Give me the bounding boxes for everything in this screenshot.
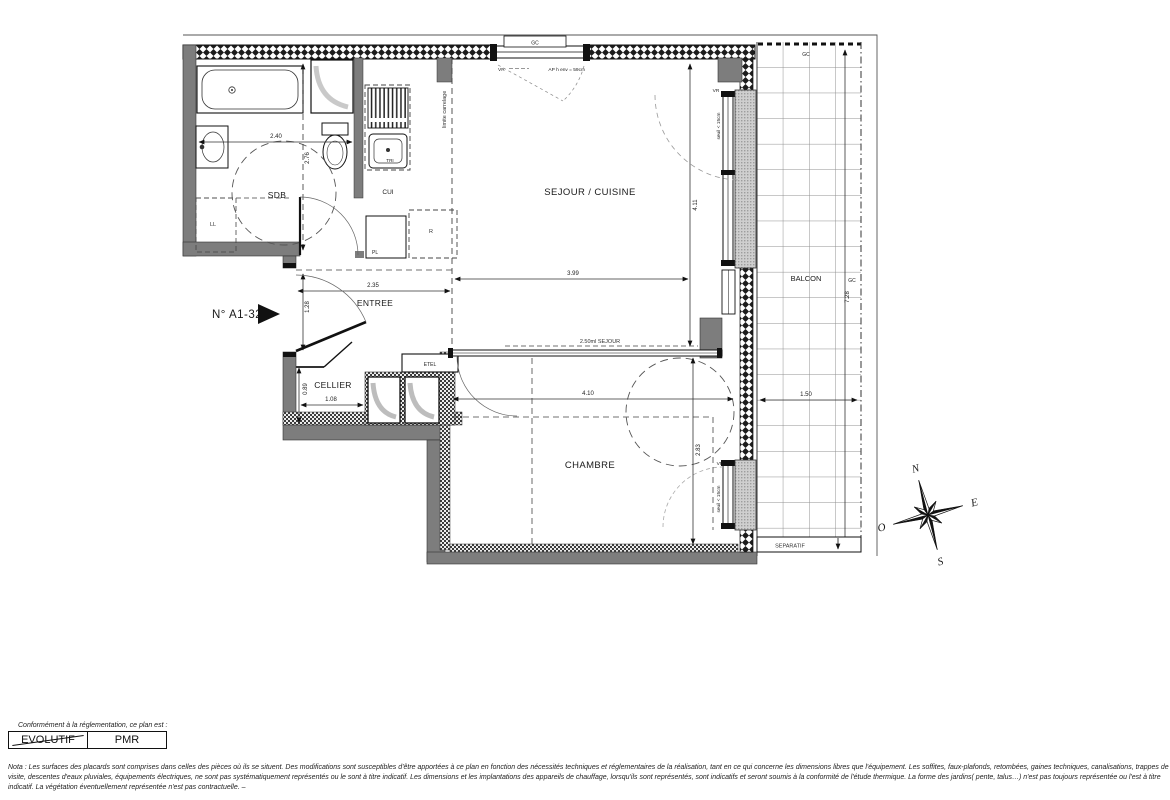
sdb-depth-dim: 2.76 [305,152,311,164]
sejour-bay-window: VR seuil < 15cm [655,88,756,268]
kitchen-window: GC VR AP h env = 59cm [490,36,590,101]
legend-intro: Conformément à la réglementation, ce pla… [18,722,167,729]
vr-housing-chambre [735,460,756,530]
ll-label: LL [210,222,216,228]
separatif-label: SEPARATIF [775,544,805,550]
compass-west-label: O [876,521,887,535]
nota-text: Nota : Les surfaces des placards sont co… [8,763,1166,793]
washbasin [196,126,228,168]
sdb-width-dim: 2.40 [270,134,282,140]
bathroom: LL SDB 2.40 2.76 [196,58,364,258]
chambre-bay-window: VR seuil < 15cm [663,460,756,530]
compass-north-label: N [910,462,922,476]
floor-plan-drawing: GC GC BALCON 7.28 1.50 SEPARATIF [0,0,1170,715]
entry-arrow-icon [258,304,280,324]
sejour-label: SEJOUR / CUISINE [544,187,635,198]
compass-east-label: E [969,496,980,510]
gc-label-right: GC [848,278,856,284]
wall-sdb-kitchen [354,58,363,198]
vr-label-sejour: VR [713,88,720,94]
sdb-label: SDB [268,190,286,200]
r-label: R [429,229,433,235]
gc-label-top: GC [802,52,810,58]
entree-depth-dim: 1.28 [305,301,311,313]
chambre-width-dim: 4.10 [582,391,594,397]
cellier-label: CELLIER [314,380,352,390]
entree-label: ENTREE [357,298,393,308]
cellar: CELLIER 1.08 0.89 [296,342,363,423]
cellier-depth-dim: 0.89 [303,383,309,395]
vr-label-top: VR [498,67,505,73]
sejour-lineal-dim: 2.50ml SEJOUR [580,339,620,345]
bathtub [197,66,303,113]
compass-south-label: S [936,555,945,568]
tri-label: TRI [386,158,393,163]
sejour-width-dim: 3.99 [567,271,579,277]
duct-box-sdb [311,60,353,113]
exterior-walls [183,45,757,564]
plan-legend: Conformément à la réglementation, ce pla… [8,722,167,749]
cui-label: CUI [382,189,393,196]
seuil-label-sejour: seuil < 15cm [716,112,722,139]
etel-label: ETEL [424,362,437,368]
legend-table: EVOLUTIF PMR [8,731,167,749]
gc-label-window: GC [531,41,539,47]
entrance-hall: ENTREE 2.35 1.28 [296,270,452,351]
nota-line-2: visite, descentes d'eaux pluviales, équi… [8,773,1166,783]
legend-pmr-cell: PMR [88,732,167,749]
technical-shafts: ETEL [365,354,458,425]
balcony-width-dim: 1.50 [800,392,812,398]
seuil-label-chambre: seuil < 15cm [716,485,722,512]
nota-line-3: indicatif. La végétation éventuellement … [8,783,1166,793]
fridge-slot [409,210,457,258]
sejour-depth-dim: 4.11 [693,199,699,211]
living-room: SEJOUR / CUISINE 4.11 3.99 2.50ml SEJOUR [455,64,699,346]
cooktop [368,88,408,128]
balcony: GC GC BALCON 7.28 1.50 SEPARATIF [757,42,861,556]
vr-label-chambre: VR [717,461,724,467]
legend-pmr-label: PMR [115,734,139,746]
compass-rose: N E S O [876,462,979,568]
vr-housing-sejour [735,90,756,268]
nota-line-1: Nota : Les surfaces des placards sont co… [8,763,1166,773]
pmr-circle-chambre [626,358,734,466]
unit-number-label: N° A1-32 [212,309,262,321]
bedroom: CHAMBRE 4.10 2.83 [448,348,734,544]
chambre-depth-dim: 2.83 [696,444,702,456]
allege-label: AP h env = 59cm [548,67,585,73]
chambre-label: CHAMBRE [565,460,615,471]
entree-width-dim: 2.35 [367,283,379,289]
legend-evolutif-cell: EVOLUTIF [9,732,88,749]
balcony-depth-dim: 7.28 [845,291,851,303]
cellier-width-dim: 1.08 [325,397,337,403]
unit-marker: N° A1-32 [212,304,280,324]
fixed-window-mid [722,270,735,314]
limite-carrelage-label: limite carrelage [442,91,448,128]
balcony-label: BALCON [791,274,822,283]
placard-kitchen: PL [366,216,406,258]
pl-label: PL [372,250,378,256]
floor-plan-page: GC GC BALCON 7.28 1.50 SEPARATIF [0,0,1170,800]
